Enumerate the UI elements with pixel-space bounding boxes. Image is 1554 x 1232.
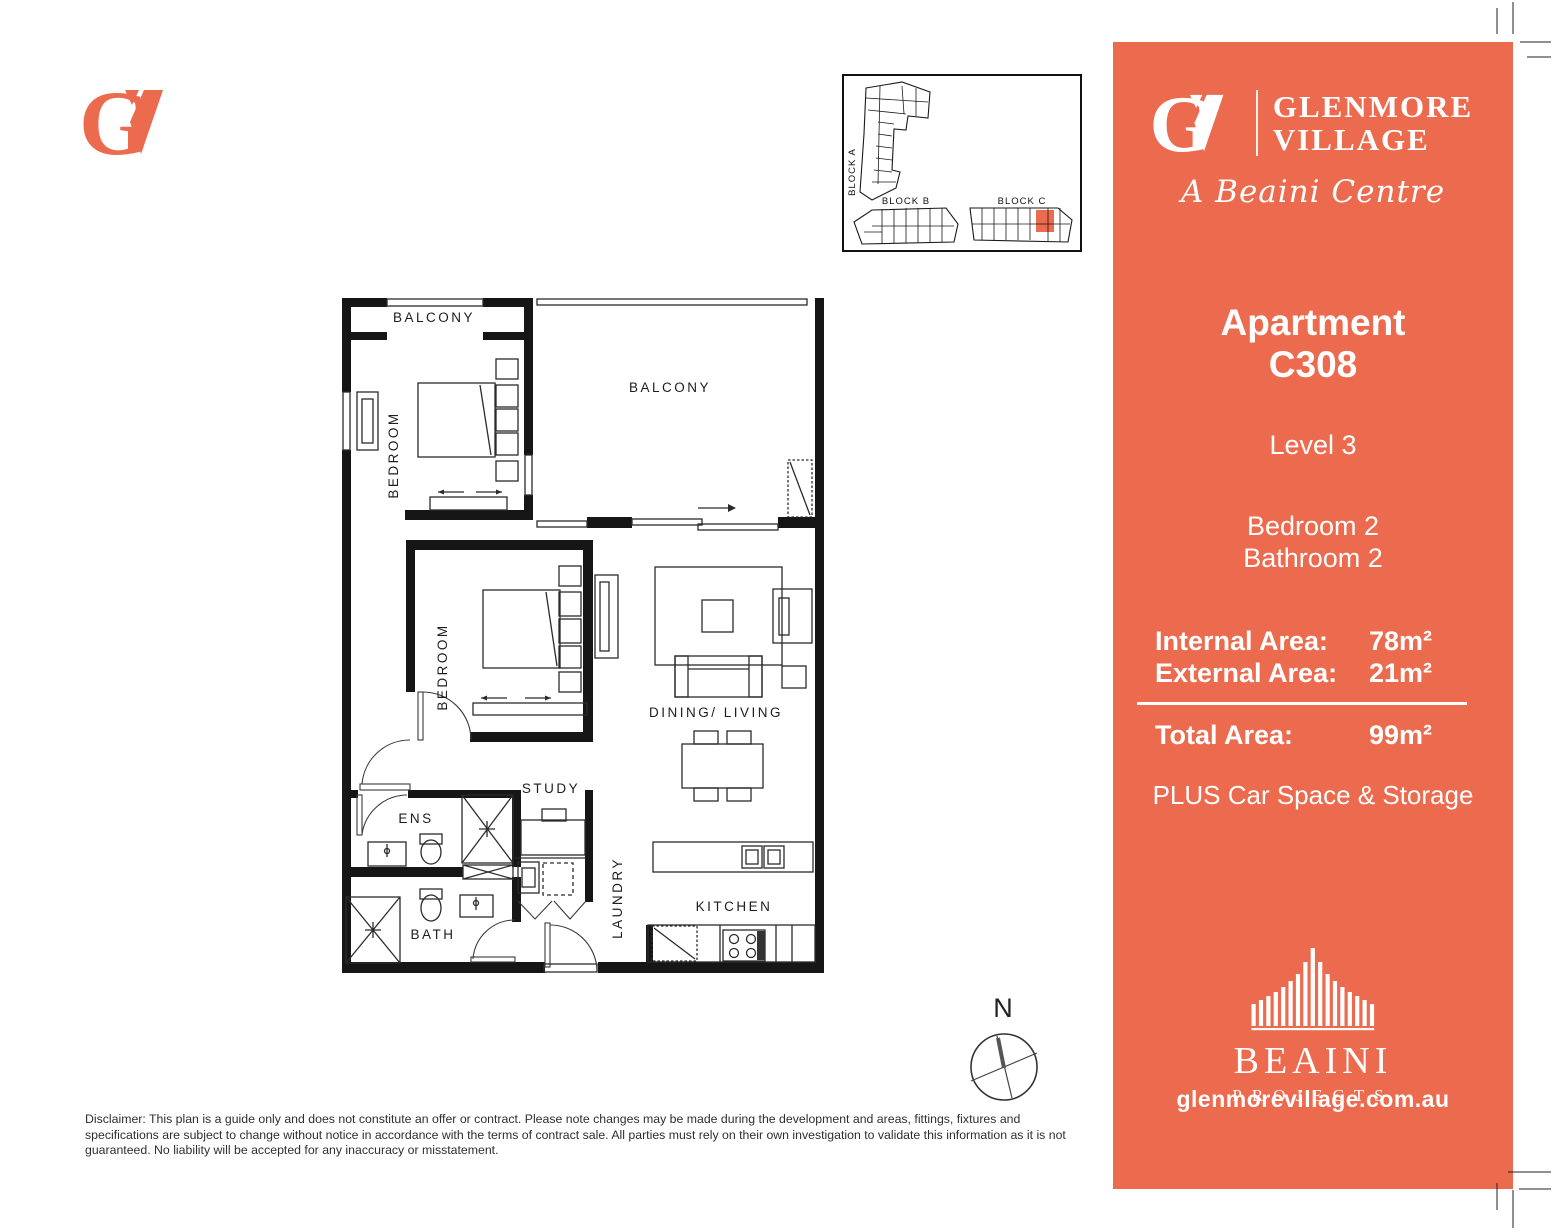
label-bath: BATH	[410, 927, 455, 942]
floor-plan: BALCONY BEDROOM BALCONY BEDROOM DINING/ …	[330, 285, 840, 985]
areas-block: Internal Area: 78m² External Area: 21m² …	[1113, 625, 1513, 751]
site-plan-block-c-outline	[970, 208, 1072, 242]
disclaimer-text: Disclaimer: This plan is a guide only an…	[85, 1112, 1087, 1159]
internal-area-value: 78m²	[1369, 625, 1432, 657]
site-plan: BLOCK A BLOCK B BLOCK C	[842, 74, 1082, 252]
apartment-title-line1: Apartment	[1113, 302, 1513, 344]
compass: N	[952, 993, 1062, 1111]
areas-divider	[1137, 702, 1467, 705]
floor-plan-bed-1	[418, 359, 518, 481]
floor-plan-ensuite-fixtures	[368, 795, 513, 879]
compass-n-label: N	[993, 993, 1013, 1023]
label-bedroom-1: BEDROOM	[386, 411, 401, 498]
brand-name: GLENMORE VILLAGE	[1273, 90, 1473, 156]
apartment-title-line2: C308	[1113, 344, 1513, 386]
gv-logo: G	[83, 88, 183, 156]
total-area-value: 99m²	[1369, 719, 1432, 751]
label-kitchen: KITCHEN	[696, 899, 773, 914]
bathrooms-text: Bathroom 2	[1113, 542, 1513, 574]
internal-area-row: Internal Area: 78m²	[1113, 625, 1513, 657]
label-laundry: LAUNDRY	[610, 857, 625, 939]
label-balcony-large: BALCONY	[629, 380, 711, 395]
floor-plan-study-laundry	[515, 809, 585, 895]
brand-name-line2: VILLAGE	[1273, 123, 1473, 156]
site-plan-block-a-label: BLOCK A	[847, 148, 858, 196]
site-plan-highlight-unit	[1036, 210, 1054, 232]
site-plan-block-c-label: BLOCK C	[998, 196, 1047, 207]
bed-bath-block: Bedroom 2 Bathroom 2	[1113, 510, 1513, 574]
floor-plan-bed-2	[483, 566, 581, 692]
label-ens: ENS	[398, 811, 433, 826]
site-plan-block-b-label: BLOCK B	[882, 196, 930, 207]
floor-plan-living-furniture	[655, 504, 812, 801]
brand-tagline: A Beaini Centre	[1113, 174, 1513, 210]
total-area-row: Total Area: 99m²	[1113, 719, 1513, 751]
beaini-name: BEAINI	[1113, 1039, 1513, 1083]
sidebar: G GLENMORE VILLAGE A Beaini Centre Apart…	[1113, 42, 1513, 1189]
label-balcony-small: BALCONY	[393, 310, 475, 325]
floor-plan-wardrobes	[430, 490, 587, 716]
sidebar-brand-row: G GLENMORE VILLAGE	[1113, 90, 1513, 156]
floorplan-brochure-page: G BLOCK A BLOCK B BLOCK C	[0, 0, 1554, 1232]
label-study: STUDY	[522, 781, 580, 796]
internal-area-label: Internal Area:	[1155, 625, 1328, 657]
label-dining-living: DINING/ LIVING	[649, 705, 783, 720]
website-url: glenmorevillage.com.au	[1113, 1086, 1513, 1113]
external-area-row: External Area: 21m²	[1113, 657, 1513, 689]
compass-needle	[998, 1038, 1004, 1068]
brand-divider	[1256, 90, 1258, 156]
plus-car-storage-text: PLUS Car Space & Storage	[1113, 780, 1513, 811]
label-bedroom-2: BEDROOM	[435, 623, 450, 710]
external-area-value: 21m²	[1369, 657, 1432, 689]
bedrooms-text: Bedroom 2	[1113, 510, 1513, 542]
level-text: Level 3	[1113, 430, 1513, 461]
total-area-label: Total Area:	[1155, 719, 1293, 751]
balcony-arrow	[728, 504, 736, 512]
beaini-logo-block: BEAINI PROJECTS	[1113, 948, 1513, 1106]
floor-plan-bath-fixtures	[346, 889, 493, 963]
beaini-building-icon	[1248, 948, 1378, 1032]
apartment-title: Apartment C308	[1113, 302, 1513, 386]
external-area-label: External Area:	[1155, 657, 1337, 689]
gv-logo-white: G	[1153, 93, 1241, 153]
brand-name-line1: GLENMORE	[1273, 90, 1473, 123]
